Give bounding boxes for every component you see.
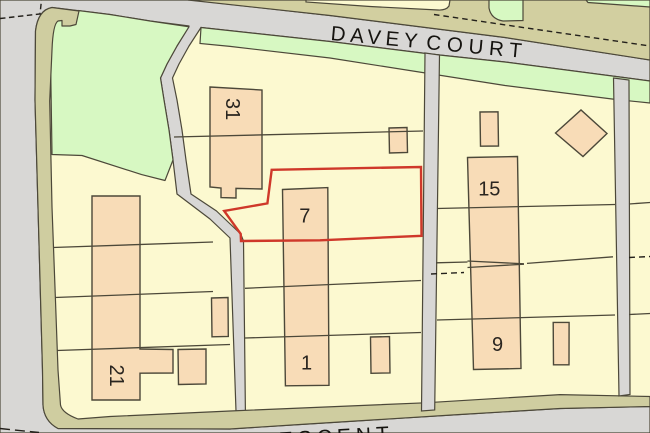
svg-text:1: 1 [301, 352, 312, 374]
svg-text:15: 15 [478, 179, 500, 201]
svg-text:21: 21 [105, 365, 127, 387]
svg-text:31: 31 [221, 98, 243, 120]
svg-text:7: 7 [299, 205, 310, 227]
svg-text:9: 9 [492, 334, 503, 356]
